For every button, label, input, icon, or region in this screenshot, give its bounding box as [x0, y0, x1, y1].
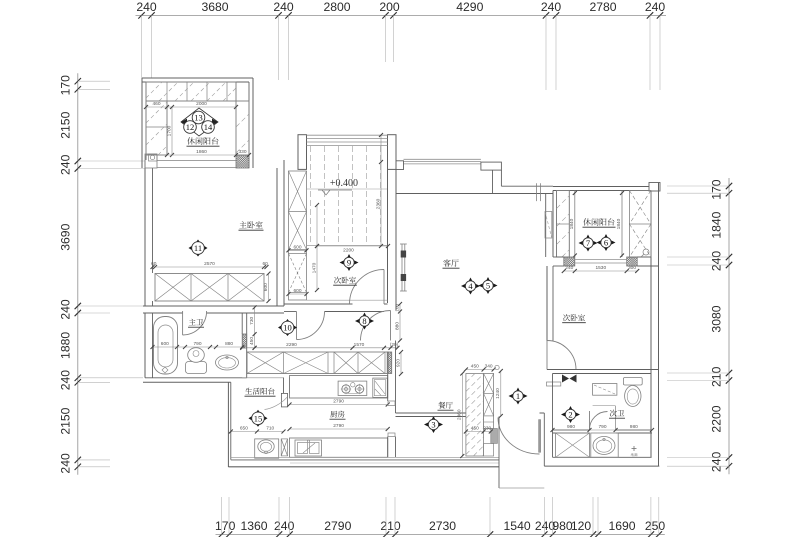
svg-text:2150: 2150	[59, 111, 73, 138]
svg-text:+0.400: +0.400	[330, 178, 358, 189]
svg-text:1470: 1470	[311, 262, 317, 273]
svg-text:230: 230	[483, 426, 491, 432]
svg-text:2800: 2800	[323, 0, 350, 14]
svg-text:2290: 2290	[286, 342, 297, 348]
svg-text:14: 14	[204, 122, 213, 132]
svg-text:600: 600	[161, 341, 169, 347]
svg-text:250: 250	[645, 519, 666, 533]
svg-text:730: 730	[249, 316, 255, 324]
svg-text:1860: 1860	[196, 149, 207, 155]
svg-text:600: 600	[263, 283, 269, 291]
svg-text:13: 13	[194, 113, 203, 123]
svg-text:2000: 2000	[196, 101, 207, 107]
svg-text:210: 210	[380, 519, 401, 533]
svg-text:1540: 1540	[504, 519, 531, 533]
svg-text:5: 5	[486, 281, 490, 291]
svg-text:240: 240	[710, 452, 724, 473]
svg-text:60: 60	[151, 261, 157, 267]
svg-text:2200: 2200	[710, 405, 724, 432]
svg-text:980: 980	[567, 424, 575, 430]
svg-text:15: 15	[254, 413, 263, 423]
svg-text:2200: 2200	[343, 248, 354, 254]
svg-text:240: 240	[541, 0, 562, 14]
svg-text:7: 7	[586, 238, 590, 248]
svg-text:790: 790	[193, 341, 201, 347]
svg-text:790: 790	[598, 424, 606, 430]
svg-text:9: 9	[347, 258, 351, 268]
svg-text:600: 600	[293, 245, 301, 251]
svg-text:240: 240	[273, 0, 294, 14]
svg-text:120: 120	[571, 519, 592, 533]
svg-text:6: 6	[604, 238, 608, 248]
svg-text:710: 710	[266, 426, 274, 432]
svg-text:450: 450	[471, 364, 479, 370]
svg-text:340: 340	[485, 364, 493, 370]
svg-text:240: 240	[274, 519, 295, 533]
svg-text:450: 450	[471, 426, 479, 432]
svg-text:1840: 1840	[710, 211, 724, 238]
svg-text:240: 240	[710, 251, 724, 272]
svg-text:170: 170	[59, 75, 73, 96]
svg-text:1690: 1690	[608, 519, 635, 533]
svg-text:2360: 2360	[457, 409, 463, 420]
svg-text:240: 240	[59, 299, 73, 320]
svg-text:8: 8	[362, 316, 366, 326]
svg-text:1530: 1530	[595, 265, 606, 271]
svg-text:3680: 3680	[201, 0, 228, 14]
svg-text:1880: 1880	[59, 332, 73, 359]
svg-text:200: 200	[379, 0, 400, 14]
svg-text:240: 240	[565, 265, 573, 271]
svg-text:4290: 4290	[456, 0, 483, 14]
svg-text:650: 650	[240, 426, 248, 432]
svg-text:980: 980	[552, 519, 573, 533]
svg-text:240: 240	[59, 154, 73, 175]
svg-text:170: 170	[215, 519, 236, 533]
svg-text:240: 240	[136, 0, 157, 14]
svg-text:2730: 2730	[429, 519, 456, 533]
svg-text:2790: 2790	[333, 399, 344, 405]
svg-text:240: 240	[645, 0, 666, 14]
svg-text:240: 240	[59, 370, 73, 391]
svg-text:11: 11	[194, 243, 202, 253]
svg-text:2360: 2360	[375, 198, 381, 209]
svg-text:1700: 1700	[166, 125, 172, 136]
svg-text:2790: 2790	[333, 423, 344, 429]
svg-text:1240: 1240	[495, 388, 501, 399]
svg-text:1570: 1570	[354, 342, 365, 348]
svg-text:920: 920	[395, 359, 401, 367]
svg-text:2780: 2780	[589, 0, 616, 14]
svg-text:3: 3	[431, 420, 435, 430]
svg-text:600: 600	[293, 288, 301, 294]
svg-text:10: 10	[283, 323, 292, 333]
svg-text:880: 880	[225, 341, 233, 347]
svg-text:2150: 2150	[59, 407, 73, 434]
svg-text:880: 880	[394, 322, 400, 330]
svg-text:210: 210	[710, 366, 724, 387]
svg-text:3080: 3080	[710, 305, 724, 332]
svg-text:1840: 1840	[616, 218, 622, 229]
svg-text:3690: 3690	[59, 223, 73, 250]
svg-text:2: 2	[568, 410, 572, 420]
svg-text:100: 100	[394, 303, 400, 311]
svg-text:1: 1	[516, 391, 520, 401]
svg-text:12: 12	[186, 122, 195, 132]
svg-text:(20): (20)	[390, 342, 399, 348]
svg-text:60: 60	[263, 261, 269, 267]
svg-text:240: 240	[59, 453, 73, 474]
svg-text:2790: 2790	[324, 519, 351, 533]
svg-text:460: 460	[152, 101, 160, 107]
svg-text:450: 450	[249, 337, 255, 345]
svg-text:330: 330	[238, 149, 246, 155]
svg-text:1360: 1360	[240, 519, 267, 533]
svg-text:170: 170	[710, 179, 724, 200]
svg-text:980: 980	[630, 424, 638, 430]
svg-text:1840: 1840	[569, 218, 575, 229]
svg-text:2570: 2570	[204, 261, 215, 267]
svg-text:300: 300	[628, 265, 636, 271]
